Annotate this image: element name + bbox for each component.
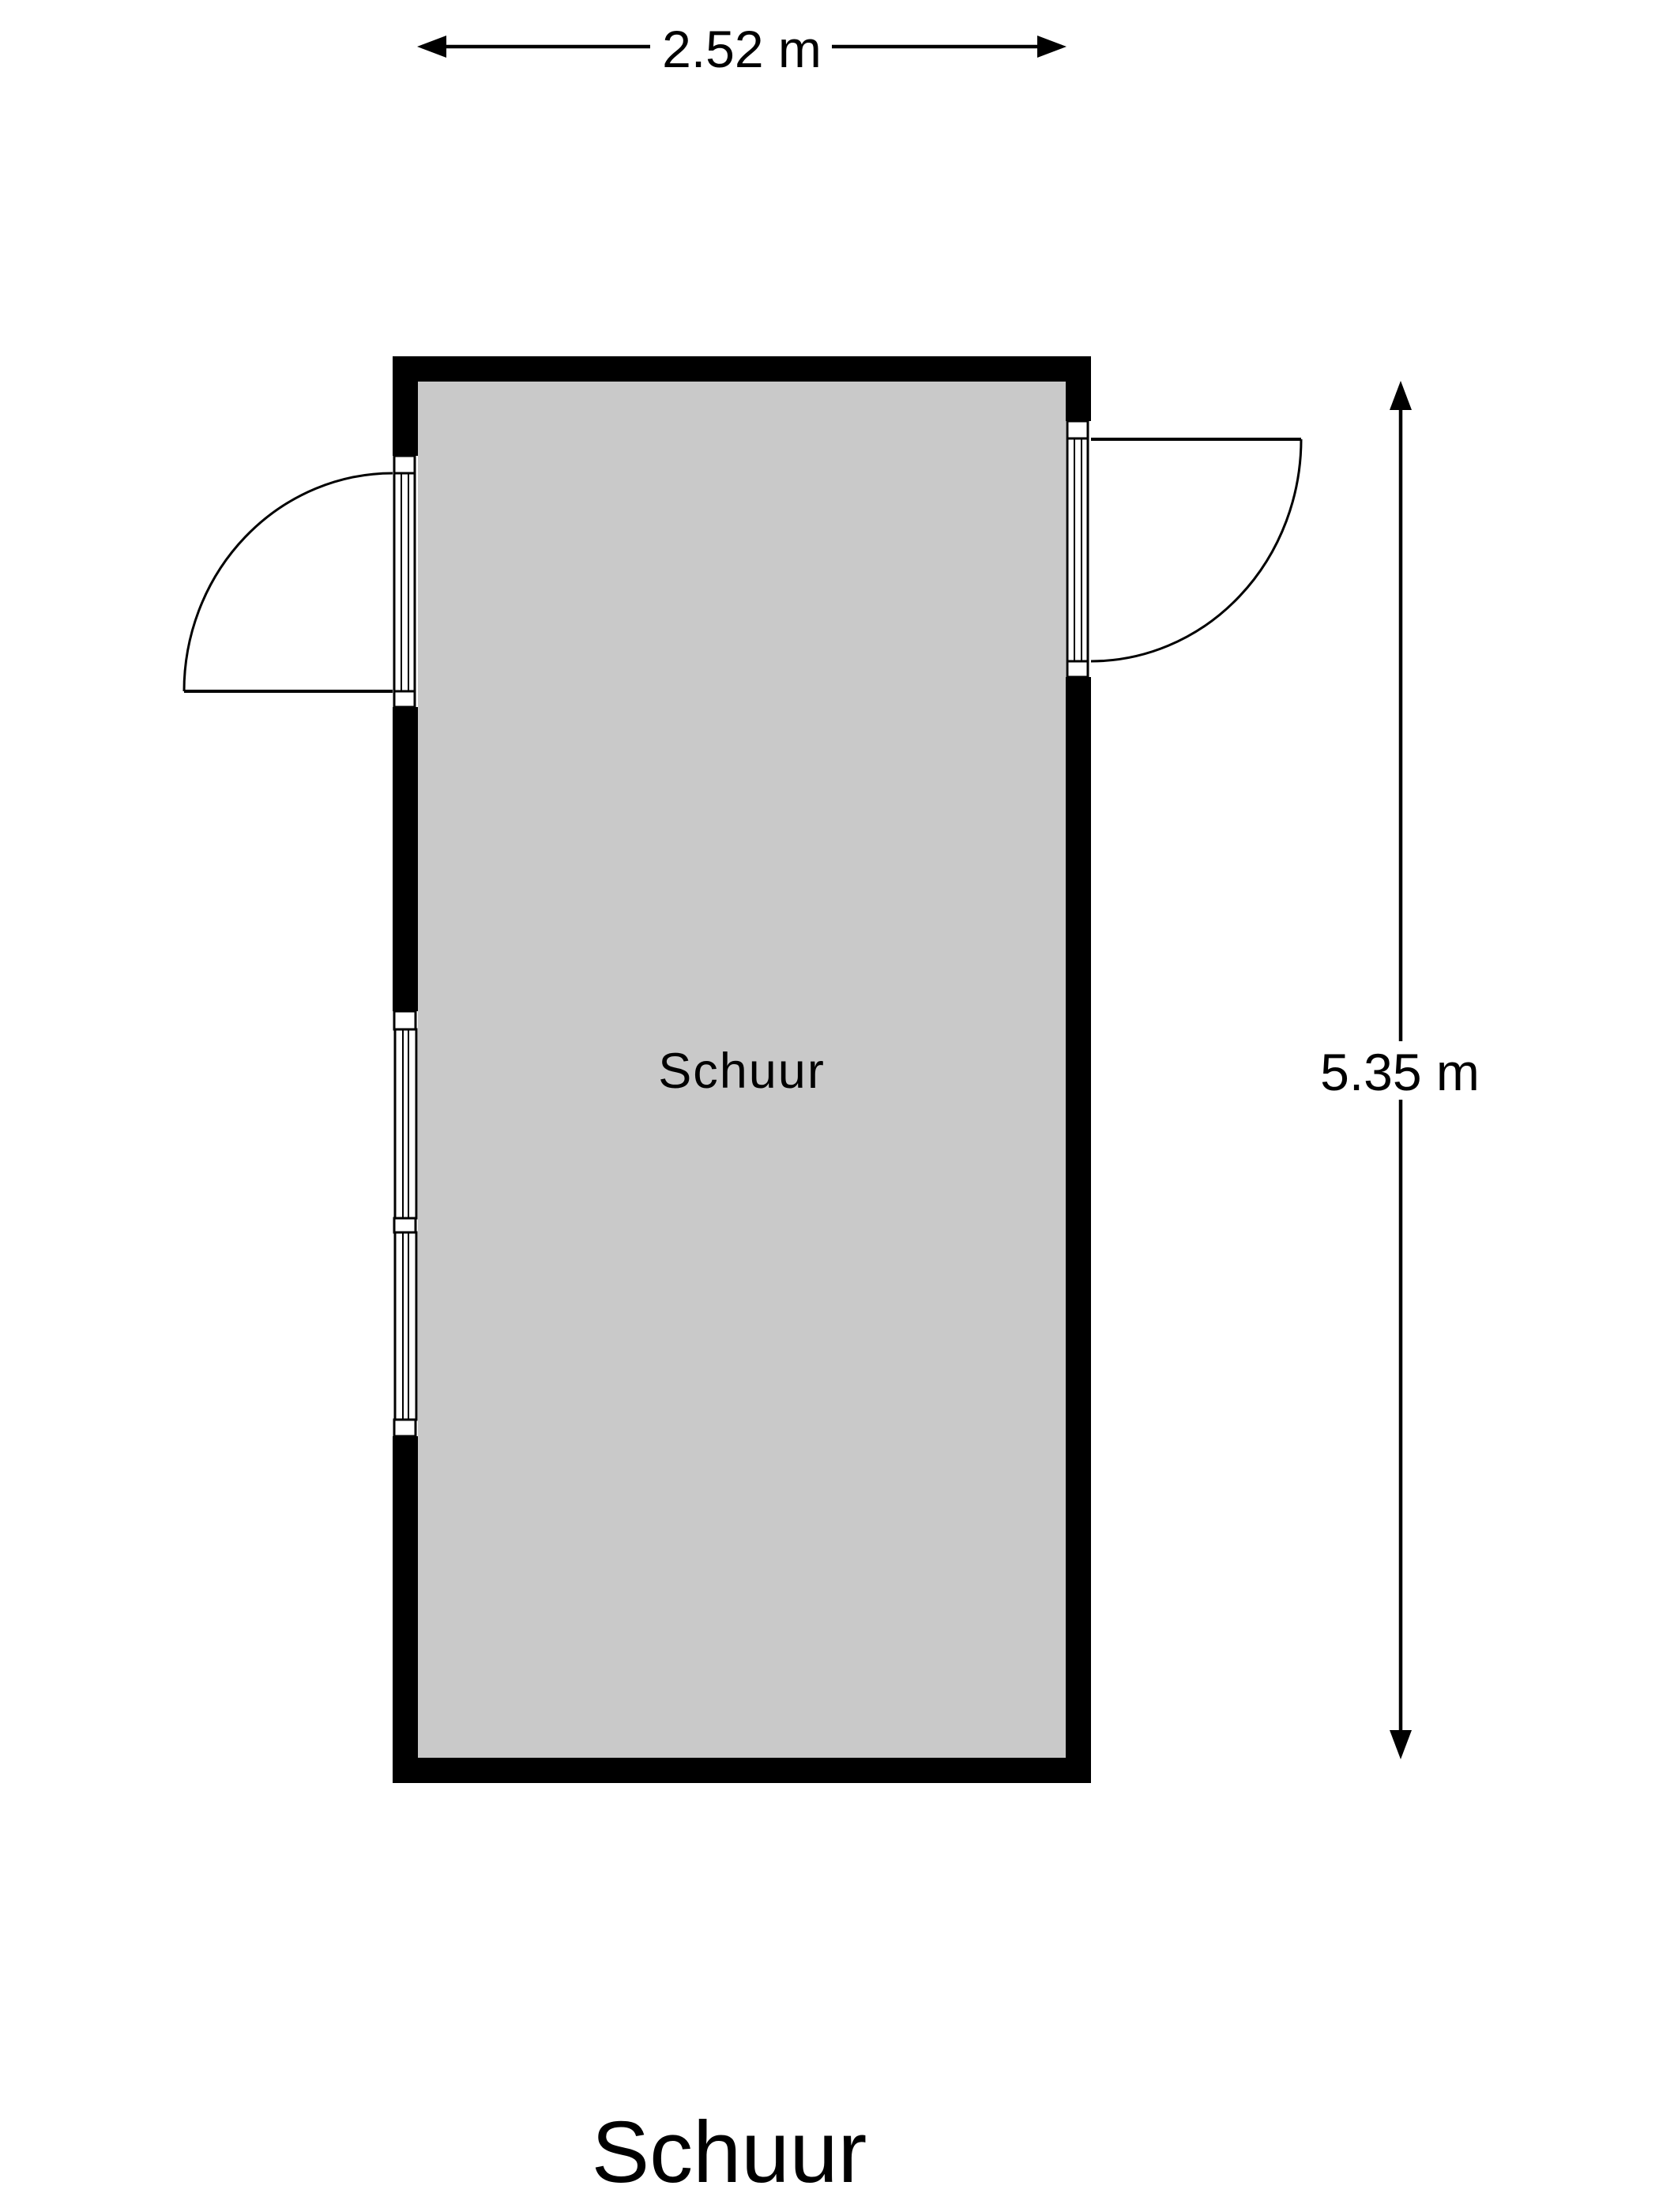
window-sash-lower (395, 1232, 416, 1420)
left-door (184, 456, 418, 707)
room-label: Schuur (658, 1044, 826, 1099)
window-jamb-top (394, 1011, 416, 1029)
floor-plan-canvas: 2.52 m (0, 0, 1659, 2212)
left-door-jamb-bottom (394, 691, 415, 707)
window-sash-upper (395, 1029, 416, 1218)
height-dimension: 5.35 m (1320, 381, 1480, 1759)
left-door-jamb-top (394, 456, 415, 473)
width-dimension-label: 2.52 m (662, 20, 822, 78)
right-door-panel (1067, 438, 1088, 661)
window-mullion (394, 1218, 416, 1232)
left-door-panel (394, 473, 415, 691)
plan-title: Schuur (592, 2104, 867, 2201)
height-dimension-label: 5.35 m (1320, 1043, 1480, 1101)
arrowhead-right-icon (1037, 36, 1066, 58)
right-door-jamb-top (1067, 421, 1088, 438)
floor-plan-page: 2.52 m (0, 0, 1659, 2212)
width-dimension: 2.52 m (417, 20, 1066, 78)
arrowhead-down-icon (1390, 1730, 1412, 1759)
window-jamb-bottom (394, 1420, 416, 1436)
right-door-jamb-bottom (1067, 661, 1088, 677)
left-door-swing-arc (184, 473, 393, 691)
right-door-swing-arc (1091, 439, 1301, 661)
left-window (393, 1011, 418, 1436)
arrowhead-up-icon (1390, 381, 1412, 410)
floor-plan: Schuur (184, 356, 1301, 1783)
right-door (1066, 421, 1301, 677)
arrowhead-left-icon (417, 36, 446, 58)
